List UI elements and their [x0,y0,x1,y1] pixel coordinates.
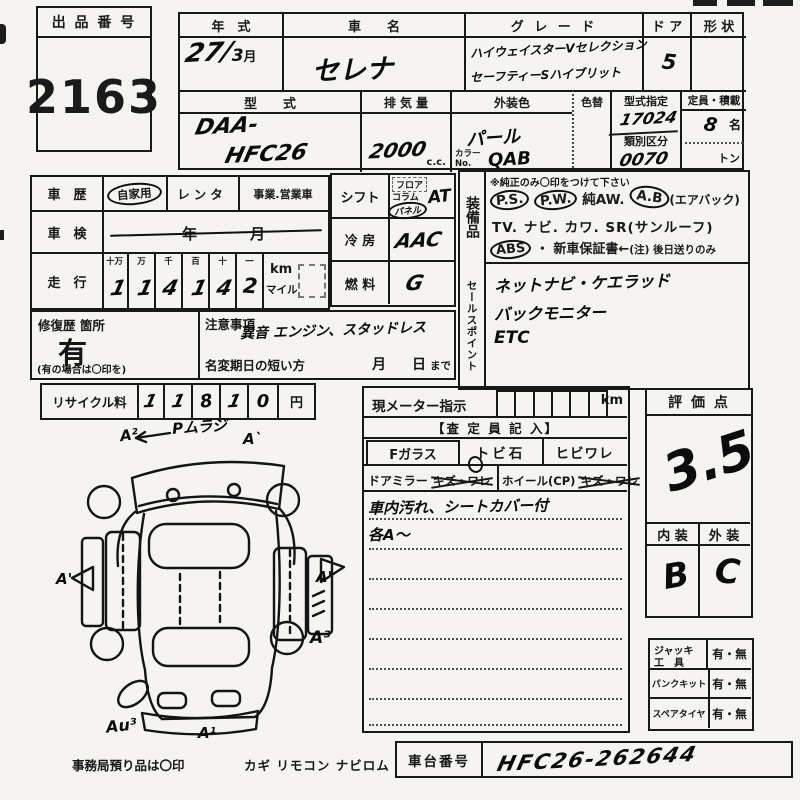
crack-label: ヒビワレ [542,439,627,464]
mileage-digit: 1 [189,276,209,301]
caution-made: まで [430,358,451,373]
equipment-note: ※純正のみ〇印をつけて下さい [490,174,630,189]
sales-point-3: ETC [494,328,530,348]
inspection-strike-line [110,229,322,237]
auction-sheet: 出 品 番 号 2163 年 式 27/3月 車 名 セレナ グ レ ー ド ハ… [0,0,800,800]
scan-artifact [0,230,4,240]
interior-label: 内 装 [647,524,698,544]
door-value: 5 [661,49,678,74]
note-ruled-line [369,668,622,670]
jack-label-2: 工 具 [654,654,684,669]
office-deposit-note: 事務局預り品は〇印 [72,755,185,774]
grade-line1: ハイウェイスターVセレクション [470,35,647,61]
mileage-col-10: 十 [210,255,235,267]
evaluation-box: 評 価 点 3.5 内 装 外 装 B C [645,388,753,618]
shift-value: AT [427,186,452,208]
diagram-annotation-a3: A³ [310,628,331,648]
mileage-col-100: 百 [183,255,208,267]
equipment-warranty: ・ 新車保証書← [536,242,629,257]
recycle-fee-box: リサイクル料 1 1 8 1 0 円 [40,383,316,420]
assessor-note-2: 各A〜 [368,524,410,545]
evaluation-score: 3.5 [656,419,762,505]
color-change-label: 色替 [574,92,610,112]
lot-number-box: 出 品 番 号 2163 [36,6,152,152]
history-label: 車 歴 [32,177,104,210]
recycle-digit: 1 [169,391,187,413]
recycle-digit: 0 [257,391,270,412]
history-option-private: 自家用 [106,180,162,207]
equipment-ab-note: (エアバック) [669,193,740,207]
accessories-box: ジャッキ 工 具 有・無 パンクキット 有・無 スペアタイヤ 有・無 [648,638,754,731]
chassis-label: 車台番号 [397,743,483,776]
diagram-annotation-au3: Au³ [105,714,138,736]
lot-number-label: 出 品 番 号 [38,8,150,38]
mileage-unit-mile: マイル [266,282,298,297]
note-ruled-line [369,724,622,726]
year-label: 年 式 [180,14,282,38]
inspection-label: 車 検 [32,212,104,252]
note-ruled-line [369,578,622,580]
jack-value: 有・無 [708,640,751,668]
meter-digit-cell [553,392,571,416]
type-designation-value: 17024 [609,107,684,136]
diagram-annotation-a2: A² [119,425,140,445]
model-line1: DAA- [193,112,261,140]
diagram-annotation-a1-left: A' [56,570,72,588]
capacity-persons-unit: 名 [729,116,741,133]
mileage-unit-km: km [270,262,292,277]
aircon-label: 冷 房 [332,219,390,260]
equipment-ps: P.S. [489,188,530,211]
displacement-label: 排 気 量 [362,92,450,114]
caution-deadline-label: 名変期日の短い方 [205,355,305,374]
lot-number: 2163 [38,44,150,150]
note-ruled-line [369,548,622,550]
wheel-damage-label: キズ・ワレ [580,473,638,489]
equipment-warranty-note: (注) 後日送りのみ [629,244,716,256]
fuel-label: 燃 料 [332,262,390,304]
mirror-damage-label: キズ・ワレ [433,473,491,489]
mirror-wheel-divider [497,466,499,490]
displacement-value: 2000 [367,137,429,164]
diagram-annotation-a1-top-right: A` [243,430,262,448]
mileage-label: 走 行 [32,254,104,308]
grade-label: グ レ ー ド [466,14,642,38]
office-deposit-items: カギ リモコン ナビロム [244,755,390,774]
mileage-digit: 2 [242,274,258,299]
shift-option-panel: パネル [387,200,427,220]
aircon-value: AAC [393,227,444,253]
diagram-annotation-pmura: Pムラジ [171,414,227,439]
repair-note: (有の場合は〇印を) [37,361,126,376]
inspection-month-unit: 月 [250,223,265,244]
mileage-col-1: 一 [237,255,262,267]
vehicle-info-table: 年 式 27/3月 車 名 セレナ グ レ ー ド ハイウェイスターVセレクショ… [178,12,744,170]
note-ruled-line [369,698,622,700]
diagram-annotation-a1-right: A' [316,568,332,586]
caution-day: 日 [412,354,426,374]
model-line2: HFC26 [223,140,310,169]
door-label: ド ア [644,14,690,38]
scan-artifact [727,0,755,6]
meter-label: 現メーター指示 [372,395,467,415]
note-ruled-line [369,518,622,520]
capacity-persons: 8 [702,113,719,137]
spare-tire-value: 有・無 [708,699,751,728]
displacement-unit: c.c. [427,157,446,168]
puncture-kit-label: パンクキット [650,670,710,697]
car-name-label: 車 名 [284,14,464,38]
chassis-number-box: 車台番号 HFC26-262644 [395,741,793,778]
scan-artifact [0,24,6,44]
capacity-label: 定員・積載 [682,92,746,111]
type-designation-label: 型式指定 [612,92,680,109]
caution-value: 異音 エンジン、スタッドレス [240,317,427,343]
sales-point-2: バックモニター [494,299,606,325]
recycle-unit: 円 [290,392,303,411]
puncture-kit-value: 有・無 [708,670,751,697]
exterior-label: 外 装 [698,524,750,544]
meter-digit-boxes [496,390,608,418]
interior-exterior-divider [698,522,700,616]
grade-line2: セーフティーSハイブリット [470,63,621,85]
mileage-digit: 1 [135,276,155,301]
spare-tire-label: スペアタイヤ [650,699,710,728]
meter-digit-cell [571,392,589,416]
meter-unit: km [601,393,623,408]
recycle-digit: 1 [141,391,159,413]
year-value: 27/ [182,37,235,69]
meter-digit-cell [498,392,516,416]
shift-table: シフト フロア コラム パネル AT 冷 房 AAC 燃 料 G [330,173,456,307]
assessor-note-1: 車内汚れ、シートカバー付 [368,494,548,518]
car-name-value: セレナ [311,47,393,89]
capacity-divider [685,142,743,144]
recycle-label: リサイクル料 [42,385,139,418]
mileage-col-100k: 十万 [102,255,127,267]
chassis-value: HFC26-262644 [495,742,700,776]
mileage-unit-checkbox [298,264,326,298]
mileage-col-10k: 万 [129,255,154,267]
sales-points-label: セールスポイント [460,264,486,388]
wheel-label: ホイール(CP) [502,474,575,488]
month-suffix: 月 [244,50,257,65]
repair-caution-box: 修復歴 箇所 有 (有の場合は〇印を) 注意事項 異音 エンジン、スタッドレス … [30,310,456,380]
note-ruled-line [369,608,622,610]
mileage-digit: 4 [160,276,180,301]
shape-label: 形 状 [692,14,746,38]
mileage-digit: 1 [108,276,128,301]
color-no-value: QAB [487,148,531,171]
meter-digit-cell [535,392,553,416]
note-ruled-line [369,638,622,640]
assessor-header: 【査 定 員 記 入】 [364,418,627,439]
equipment-label: 装備品 [460,172,486,262]
classification-value: 0070 [617,149,670,171]
caution-month: 月 [372,354,386,374]
equipment-abs: ABS [489,238,532,261]
classification-label: 類別区分 [612,133,680,149]
shift-label: シフト [332,175,390,217]
equipment-ab: A.B [628,183,671,210]
month-value: 3 [232,46,244,66]
meter-assessor-box: 現メーター指示 km 【査 定 員 記 入】 Fガラス トビ石 ヒビワレ ドアミ… [362,386,630,733]
equipment-aw: 純AW. [582,192,624,208]
color-no-label: カラーNo. [455,150,485,169]
capacity-load-unit: トン [718,150,740,166]
history-option-business: 事業.営業車 [238,177,328,210]
history-table: 車 歴 自家用 レンタ 事業.営業車 車 検 年 月 走 行 十万1 万1 千4… [30,175,330,310]
ext-color-label: 外装色 [452,92,572,114]
interior-grade: B [660,554,692,598]
diagram-annotation-a1-bottom: A¹ [198,724,216,742]
meter-digit-cell [516,392,534,416]
fuel-value: G [403,271,426,296]
exterior-grade: C [713,551,742,593]
mileage-digit: 4 [214,276,234,301]
recycle-digit: 1 [225,391,243,413]
equipment-box: 装備品 セールスポイント ※純正のみ〇印をつけて下さい P.S. P.W. 純A… [458,170,750,390]
equipment-line2: TV. ナビ. カワ. SR(サンルーフ) [492,216,714,236]
fglass-label: Fガラス [366,440,460,466]
scan-artifact [693,0,717,6]
recycle-digit: 8 [198,390,213,413]
ext-color-value: パール [465,122,521,152]
mirror-label: ドアミラー [368,474,428,488]
history-option-rental: レンタ [166,177,240,210]
sales-point-1: ネットナビ・ケエラッド [494,267,671,297]
evaluation-label: 評 価 点 [647,390,751,416]
equipment-pw: P.W. [533,188,578,212]
model-label: 型 式 [180,92,360,114]
mileage-col-1k: 千 [156,255,181,267]
scan-artifact [763,0,793,6]
